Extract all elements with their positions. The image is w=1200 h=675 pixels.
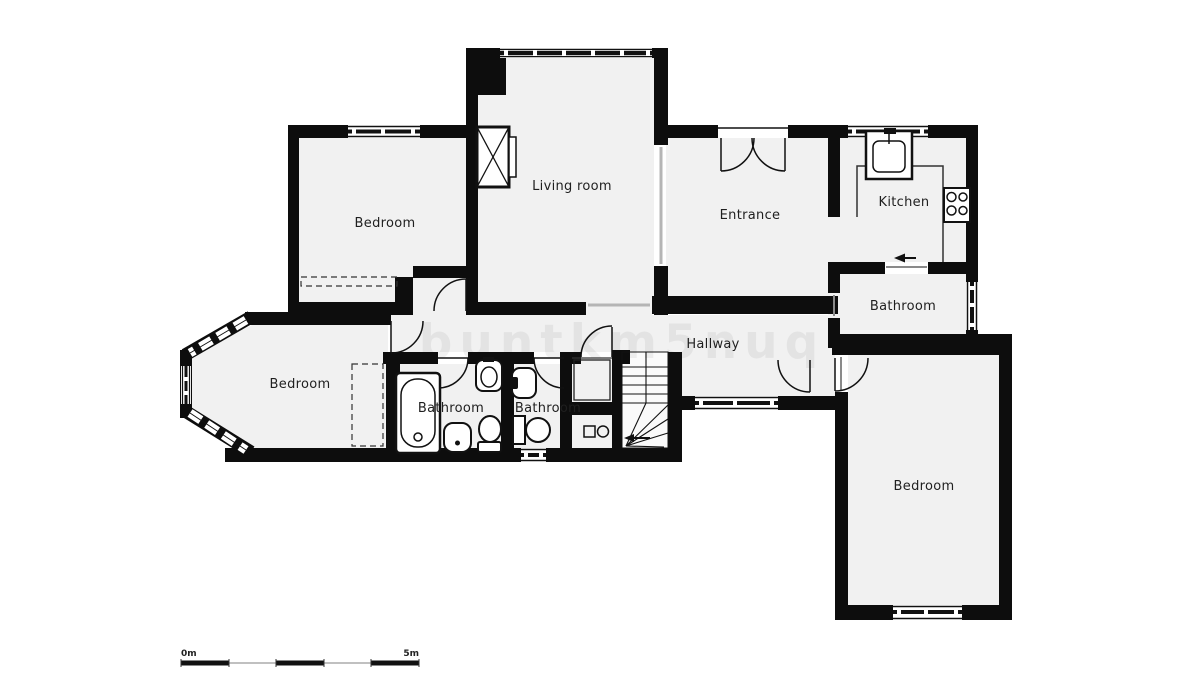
scale-end-label: 5m	[403, 649, 419, 659]
room-label-bathroom-left: Bathroom	[418, 401, 484, 416]
fireplace	[477, 127, 516, 187]
scale-bar: 0m 5m	[181, 649, 419, 667]
room-label-living-room: Living room	[532, 179, 612, 194]
window-bay-left	[181, 366, 191, 404]
wall-segment	[668, 352, 682, 462]
wall-segment	[420, 125, 466, 138]
floor-laundry	[572, 415, 612, 448]
window-bedroom-top-left	[348, 125, 420, 138]
room-label-bathroom-center: Bathroom	[515, 401, 581, 416]
scale-start-label: 0m	[181, 649, 197, 659]
wall-segment	[395, 277, 413, 304]
wall-segment	[966, 262, 978, 282]
room-label-hallway: Hallway	[686, 337, 739, 352]
window-bathroom-top-right	[966, 282, 978, 330]
wall-segment	[828, 125, 840, 217]
wall-segment	[999, 340, 1012, 620]
bidet	[444, 423, 471, 452]
wall-segment	[413, 266, 468, 278]
window-bedroom-bottom-right	[893, 605, 962, 620]
room-label-bathroom-top-right: Bathroom	[870, 299, 936, 314]
wall-segment	[828, 274, 840, 293]
wall-segment	[832, 340, 1012, 355]
wall-segment	[652, 296, 838, 314]
toilet-bathroom-center	[513, 416, 550, 444]
wall-segment	[245, 312, 391, 325]
scale-segments	[181, 661, 419, 666]
room-label-bedroom-bottom-right: Bedroom	[894, 479, 955, 494]
sink-bathroom-left	[476, 357, 502, 391]
window-hallway	[695, 396, 778, 410]
floor-kitchen-entry	[828, 217, 840, 262]
wall-segment	[288, 125, 299, 315]
wall-segment	[828, 125, 848, 138]
wall-segment	[778, 396, 838, 410]
window-bathroom-center	[521, 448, 546, 462]
kitchen-sink	[866, 128, 912, 179]
floorplan-drawing: buntkm5nuq	[0, 0, 1200, 675]
wall-segment	[225, 448, 521, 462]
room-label-bedroom-left: Bedroom	[270, 377, 331, 392]
room-label-entrance: Entrance	[720, 208, 781, 223]
window-living-room	[500, 48, 652, 58]
floorplan-page: buntkm5nuq	[0, 0, 1200, 675]
room-label-kitchen: Kitchen	[879, 195, 930, 210]
stove	[944, 188, 970, 222]
wall-segment	[468, 302, 586, 315]
wall-segment	[546, 448, 682, 462]
wall-segment	[835, 605, 893, 620]
toilet-bathroom-left	[478, 416, 501, 452]
wall-segment	[962, 605, 1012, 620]
floor-hallway-nook	[413, 278, 466, 315]
sink-bathroom-center	[510, 368, 536, 398]
wall-segment	[828, 318, 840, 334]
wall-segment	[466, 48, 500, 58]
wall-segment	[288, 125, 348, 138]
wall-segment	[835, 392, 848, 619]
wall-segment	[828, 262, 885, 274]
wall-segment	[682, 396, 695, 410]
wall-segment	[654, 125, 718, 138]
room-label-bedroom-top-left: Bedroom	[355, 216, 416, 231]
wall-segment	[612, 352, 622, 462]
